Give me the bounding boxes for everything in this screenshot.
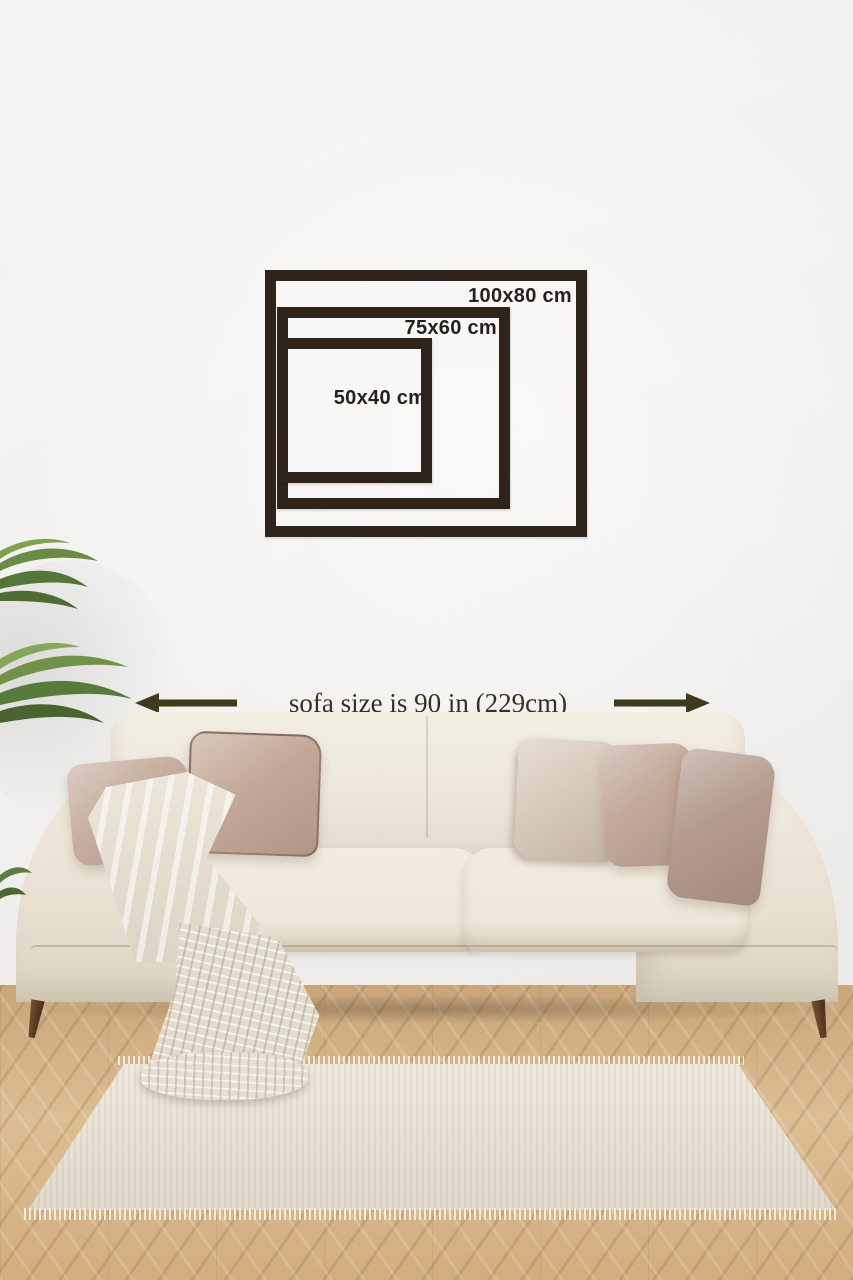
pillow-5 — [665, 747, 777, 907]
arrow-left-icon — [135, 692, 237, 714]
size-label-50x40: 50x40 cm — [334, 388, 426, 408]
size-label-100x80: 100x80 cm — [468, 286, 572, 306]
size-guide-diagram: 100x80 cm 75x60 cm 50x40 cm — [265, 270, 587, 537]
product-size-mockup: 100x80 cm 75x60 cm 50x40 cm sofa size is… — [0, 0, 853, 1280]
plant-leaves-icon — [0, 535, 150, 935]
arrow-right-icon — [614, 692, 710, 714]
throw-blanket-pile-on-rug — [140, 1052, 308, 1100]
frame-outline-50x40 — [277, 338, 432, 483]
rug-fringe-bottom — [24, 1208, 838, 1220]
sofa-backrest-seam — [426, 716, 428, 838]
size-label-75x60: 75x60 cm — [405, 318, 497, 338]
